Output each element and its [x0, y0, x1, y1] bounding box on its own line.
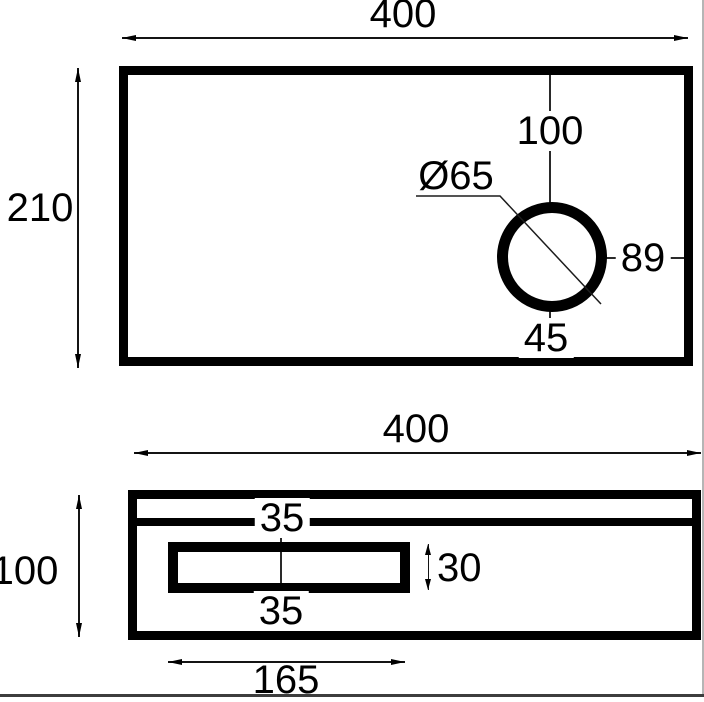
arrowhead-right-icon [687, 450, 701, 456]
arrowhead-right-icon [391, 659, 405, 665]
arrowhead-down-icon [425, 579, 431, 590]
top-view-outline [119, 66, 693, 366]
dimension-line-top-width [122, 37, 688, 39]
technical-drawing-canvas: 400 210 100 Ø65 89 45 400 100 35 30 35 1… [0, 0, 704, 697]
arrowhead-up-icon [425, 544, 431, 555]
arrowhead-down-icon [75, 354, 81, 368]
arrowhead-down-icon [76, 623, 82, 637]
dim-hole-from-right-label: 89 [616, 238, 671, 278]
arrowhead-up-icon [75, 68, 81, 82]
dimension-line-top-height [77, 68, 79, 368]
dim-top-width-label: 400 [370, 0, 437, 34]
arrowhead-left-icon [134, 450, 148, 456]
dim-bottom-width-label: 400 [383, 409, 450, 449]
arrowhead-left-icon [168, 659, 182, 665]
dim-slot-height-label: 30 [437, 548, 482, 588]
dim-hole-from-bottom-label: 45 [519, 318, 574, 358]
dim-hole-diameter-label: Ø65 [418, 156, 494, 196]
arrowhead-left-icon [122, 35, 136, 41]
dimension-line-bottom-height [78, 495, 80, 637]
hole-circle [497, 202, 607, 312]
dim-slot-offset-label: 35 [254, 591, 309, 631]
dimension-line-bottom-width [134, 452, 701, 454]
dim-top-height-label: 210 [7, 188, 74, 228]
slot-outline [168, 542, 410, 593]
groove-line [137, 518, 692, 526]
dim-groove-offset-label: 35 [255, 498, 310, 538]
dim-hole-from-top-label: 100 [512, 111, 589, 151]
arrowhead-up-icon [76, 495, 82, 509]
dim-bottom-height-label: 100 [0, 551, 58, 591]
arrowhead-right-icon [674, 35, 688, 41]
